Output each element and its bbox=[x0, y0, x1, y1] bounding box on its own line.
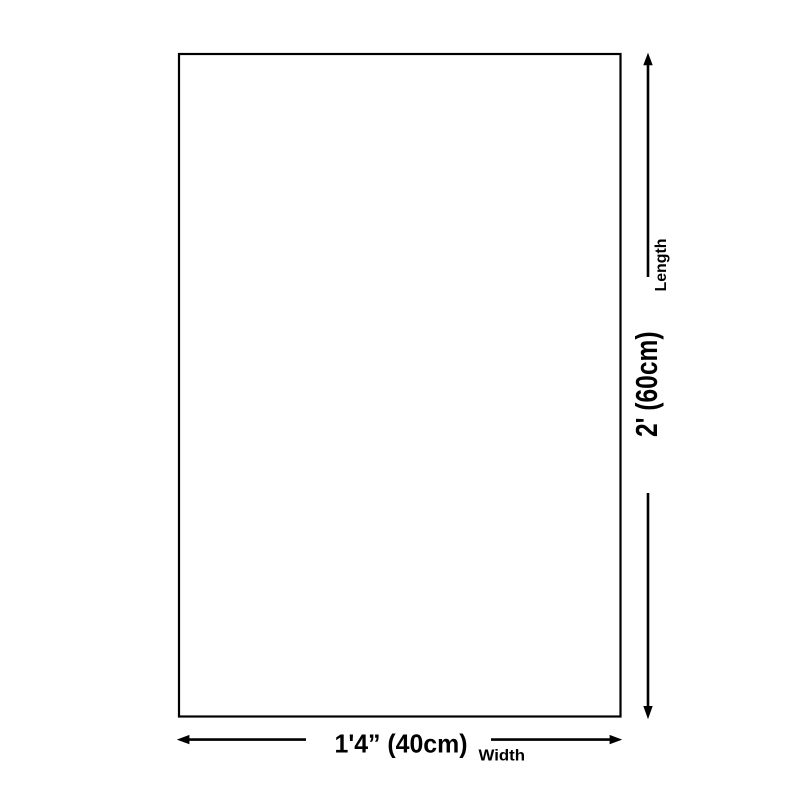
svg-text:1'4” (40cm): 1'4” (40cm) bbox=[335, 728, 468, 758]
svg-text:Width: Width bbox=[479, 748, 526, 765]
svg-text:2' (60cm): 2' (60cm) bbox=[630, 332, 664, 438]
svg-text:Length: Length bbox=[653, 239, 670, 292]
